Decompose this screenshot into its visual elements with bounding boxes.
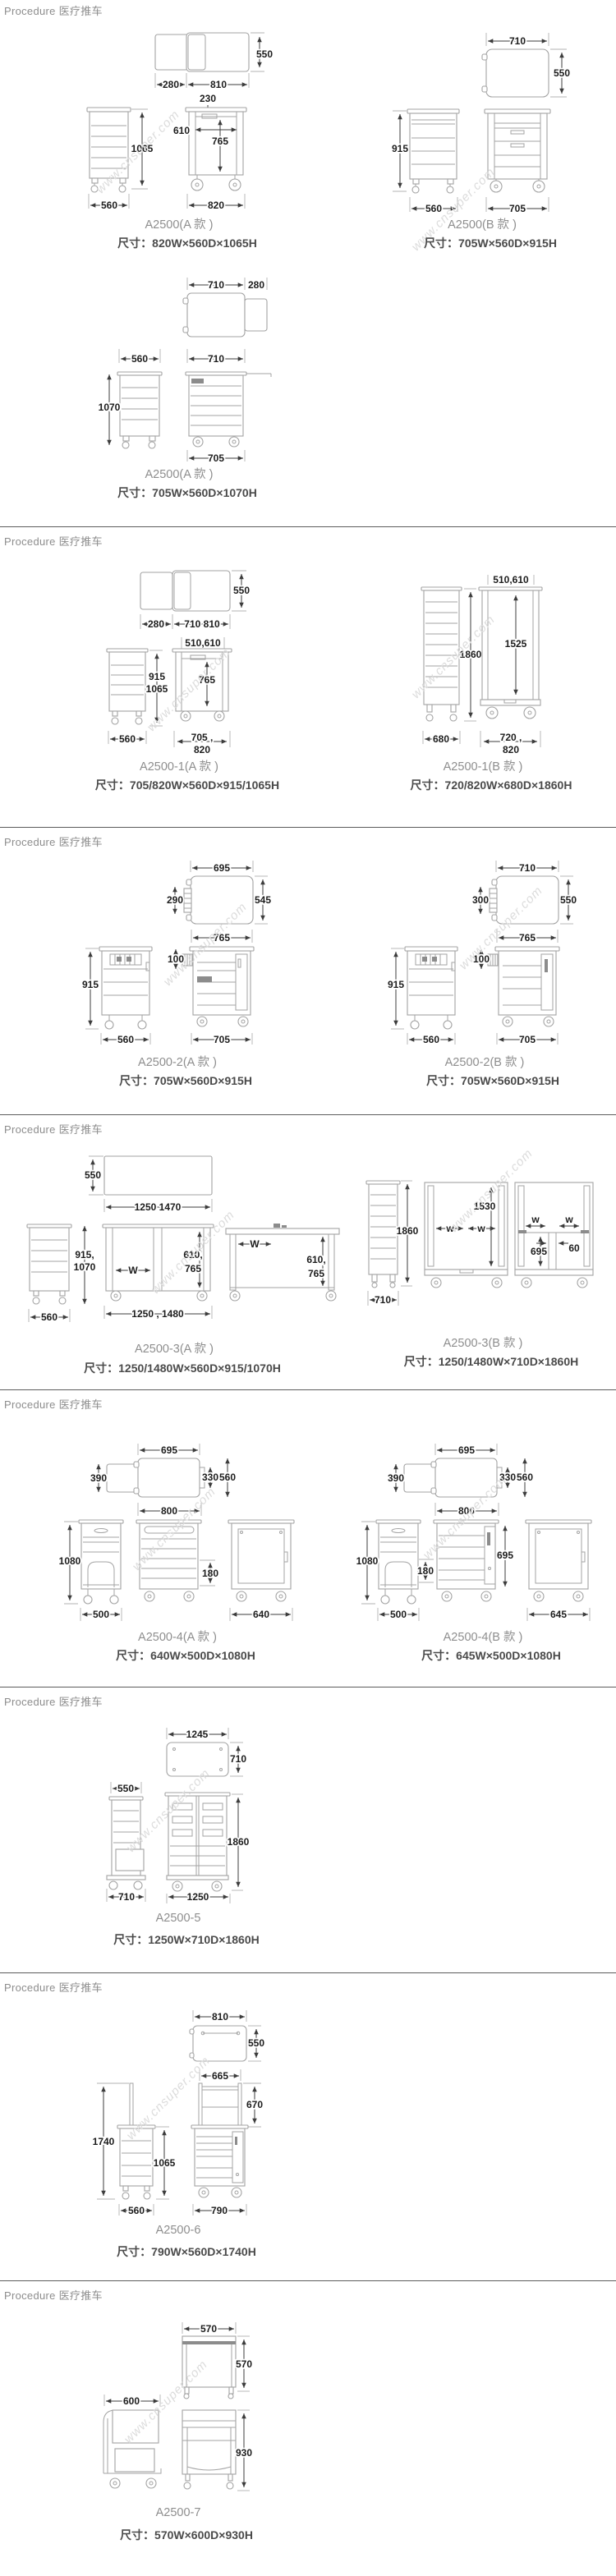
dim-label: 705 bbox=[208, 452, 224, 464]
dim-label: 60 bbox=[568, 1242, 580, 1254]
dim-label: 550 bbox=[233, 585, 250, 596]
dim-label: 1250 1470 bbox=[135, 1201, 182, 1213]
drawing-a2500-3a: 550 1250 1470 915, 1070 560 W 610, 765 1… bbox=[27, 1156, 339, 1323]
dim-label: w bbox=[476, 1223, 485, 1234]
drawing-a2500-2a: 695 290 545 765 915 100 bbox=[82, 861, 271, 1045]
dim-label: 710 bbox=[118, 1891, 135, 1903]
dim-label: 1070 bbox=[74, 1261, 96, 1273]
dim-label: 550 bbox=[117, 1783, 134, 1794]
dim-label: 560 bbox=[128, 2205, 145, 2216]
dim-label: 560 bbox=[41, 1311, 57, 1323]
dim-label: 300 bbox=[472, 894, 489, 906]
section-divider bbox=[0, 827, 616, 828]
model-size: 尺寸：720/820W×680D×1860H bbox=[343, 777, 616, 793]
dim-label: 1070 bbox=[99, 402, 121, 413]
section-header: Procedure 医疗推车 bbox=[4, 1693, 103, 1709]
dim-label: 790 bbox=[211, 2205, 228, 2216]
dim-label: W bbox=[128, 1265, 138, 1276]
dim-label: 600 bbox=[123, 2395, 140, 2407]
dim-label: 710 bbox=[208, 279, 224, 291]
model-name: A2500(A 款 ) bbox=[56, 215, 302, 232]
dim-label: 500 bbox=[390, 1609, 407, 1620]
dim-label: 1860 bbox=[228, 1836, 250, 1848]
dim-label: 695 bbox=[531, 1246, 547, 1257]
model-size: 尺寸：645W×500D×1080H bbox=[343, 1647, 616, 1664]
dim-label: 280 bbox=[148, 618, 164, 630]
model-size: 尺寸：705/820W×560D×915/1065H bbox=[39, 777, 335, 793]
model-size: 尺寸：640W×500D×1080H bbox=[38, 1647, 333, 1664]
dim-label: W bbox=[250, 1238, 260, 1250]
dim-label: 560 bbox=[117, 1034, 134, 1045]
dim-label: 570 bbox=[200, 2323, 217, 2335]
section-divider bbox=[0, 1389, 616, 1390]
dim-label: 390 bbox=[90, 1472, 107, 1484]
section-divider bbox=[0, 2280, 616, 2281]
dim-label: w bbox=[564, 1214, 573, 1225]
dim-label: 705 bbox=[519, 1034, 536, 1045]
dim-label: 915 bbox=[392, 143, 408, 154]
model-name: A2500-2(A 款 ) bbox=[54, 1053, 301, 1070]
dim-label: 230 bbox=[200, 93, 216, 104]
dim-label: 930 bbox=[236, 2447, 252, 2459]
model-name: A2500-7 bbox=[55, 2506, 301, 2519]
dim-label: 820 bbox=[503, 744, 519, 755]
dim-label: 560 bbox=[119, 733, 136, 745]
model-name: A2500(A 款 ) bbox=[56, 465, 302, 482]
dim-label: 330 bbox=[202, 1472, 218, 1483]
dim-label: 550 bbox=[560, 894, 577, 906]
section-header: Procedure 医疗推车 bbox=[4, 533, 103, 549]
dim-label: 560 bbox=[423, 1034, 439, 1045]
dim-label: 290 bbox=[167, 894, 183, 906]
model-name: A2500-1(A 款 ) bbox=[56, 757, 302, 774]
model-name: A2500-6 bbox=[55, 2224, 301, 2237]
drawing-a2500-6: 810 550 665 670 1740 1065 560 bbox=[93, 2010, 265, 2216]
model-name: A2500-3(B 款 ) bbox=[360, 1334, 606, 1351]
dim-label: 710 bbox=[509, 35, 526, 47]
section-divider bbox=[0, 1972, 616, 1973]
dim-label: 705 , bbox=[191, 732, 214, 743]
dim-label: 765 bbox=[308, 1268, 324, 1279]
model-name: A2500-4(B 款 ) bbox=[360, 1628, 606, 1645]
model-name: A2500-2(B 款 ) bbox=[361, 1053, 608, 1070]
dim-label: 720 , bbox=[500, 732, 522, 743]
dim-label: 1250 bbox=[187, 1891, 209, 1903]
dim-label: 645 bbox=[550, 1609, 567, 1620]
dim-label: 695 bbox=[161, 1444, 177, 1456]
dim-label: 820 bbox=[194, 744, 210, 755]
dim-label: 510,610 bbox=[185, 637, 221, 649]
dim-label: 670 bbox=[246, 2099, 263, 2110]
model-name: A2500(B 款 ) bbox=[359, 215, 605, 232]
dim-label: 765 bbox=[212, 135, 228, 147]
section-divider bbox=[0, 1687, 616, 1687]
model-size: 尺寸：1250/1480W×710D×1860H bbox=[343, 1353, 616, 1370]
section-header: Procedure 医疗推车 bbox=[4, 2, 103, 18]
dim-label: 640 bbox=[253, 1609, 269, 1620]
dim-label: 180 bbox=[417, 1565, 434, 1577]
dim-label: 550 bbox=[248, 2037, 264, 2049]
dim-label: 1065 bbox=[154, 2157, 176, 2169]
dim-label: 280 bbox=[248, 279, 264, 291]
dim-label: 710 bbox=[208, 353, 224, 365]
model-size: 尺寸：705W×560D×1070H bbox=[39, 484, 335, 501]
section-header: Procedure 医疗推车 bbox=[4, 2287, 103, 2303]
dim-label: 915 bbox=[149, 671, 165, 682]
dim-label: 550 bbox=[256, 48, 273, 60]
catalog-page: 550 280 810 230 1065 560 610 765 bbox=[0, 0, 616, 2576]
dim-label: 510,610 bbox=[493, 574, 529, 585]
dim-label: 1065 bbox=[146, 683, 168, 695]
model-size: 尺寸：705W×560D×915H bbox=[38, 1072, 333, 1089]
dim-label: 710 bbox=[519, 862, 536, 874]
dim-label: 1080 bbox=[59, 1555, 81, 1567]
section-header: Procedure 医疗推车 bbox=[4, 1396, 103, 1412]
dim-label: 710 bbox=[375, 1294, 391, 1306]
model-size: 尺寸：705W×560D×915H bbox=[345, 1072, 616, 1089]
dim-label: 800 bbox=[161, 1505, 177, 1517]
dim-label: 915, bbox=[75, 1249, 94, 1260]
section-header: Procedure 医疗推车 bbox=[4, 1979, 103, 1995]
dim-label: 560 bbox=[517, 1472, 533, 1483]
dim-label: 695 bbox=[214, 862, 230, 874]
drawing-a2500-1a: 550 280 710 810 510,610 915 1065 765 560 bbox=[107, 571, 250, 755]
line-art: 550 280 810 230 1065 560 610 765 bbox=[0, 0, 616, 2576]
dim-label: 1080 bbox=[356, 1555, 379, 1567]
dim-label: 695 bbox=[458, 1444, 475, 1456]
model-name: A2500-3(A 款 ) bbox=[51, 1339, 297, 1357]
dim-label: 560 bbox=[131, 353, 148, 365]
dim-label: 1525 bbox=[505, 638, 527, 650]
drawing-a2500-a2: 710 280 560 710 1070 705 bbox=[99, 278, 271, 464]
model-name: A2500-5 bbox=[55, 1912, 301, 1925]
dim-label: 680 bbox=[433, 733, 449, 745]
dim-label: 915 bbox=[388, 979, 404, 990]
dim-label: 810 bbox=[210, 79, 227, 90]
dim-label: 610 bbox=[173, 125, 190, 136]
model-name: A2500-1(B 款 ) bbox=[360, 757, 606, 774]
model-size: 尺寸：1250W×710D×1860H bbox=[39, 1931, 334, 1948]
dim-label: 570 bbox=[236, 2358, 252, 2370]
dim-label: 705 bbox=[214, 1034, 230, 1045]
model-size: 尺寸：790W×560D×1740H bbox=[39, 2243, 334, 2260]
dim-label: 550 bbox=[85, 1169, 101, 1181]
dim-label: 705 bbox=[509, 203, 526, 214]
dim-label: 710 bbox=[230, 1753, 246, 1765]
drawing-a2500-7: 570 570 600 930 bbox=[103, 2322, 252, 2491]
dim-label: 695 bbox=[497, 1550, 513, 1561]
dim-label: 280 bbox=[163, 79, 179, 90]
dim-label: 820 bbox=[208, 200, 224, 211]
model-name: A2500-4(A 款 ) bbox=[54, 1628, 301, 1645]
dim-label: 500 bbox=[93, 1609, 109, 1620]
dim-label: 710 810 bbox=[184, 618, 220, 630]
dim-label: 610, bbox=[306, 1254, 325, 1265]
dim-label: 765 bbox=[519, 932, 536, 944]
section-header: Procedure 医疗推车 bbox=[4, 1121, 103, 1136]
dim-label: 665 bbox=[212, 2070, 228, 2082]
section-header: Procedure 医疗推车 bbox=[4, 833, 103, 849]
drawing-a2500-4b: 695 390 330 560 800 1080 500 bbox=[356, 1444, 591, 1621]
dim-label: 545 bbox=[255, 894, 271, 906]
dim-label: 1245 bbox=[186, 1729, 209, 1740]
section-divider bbox=[0, 526, 616, 527]
dim-label: 810 bbox=[212, 2011, 228, 2023]
model-size: 尺寸：1250/1480W×560D×915/1070H bbox=[34, 1360, 330, 1376]
dim-label: 390 bbox=[388, 1472, 404, 1484]
dim-label: 1740 bbox=[93, 2136, 115, 2147]
dim-label: 550 bbox=[554, 67, 570, 79]
section-divider bbox=[0, 1114, 616, 1115]
model-size: 尺寸：570W×600D×930H bbox=[39, 2527, 334, 2543]
dim-label: 180 bbox=[202, 1568, 218, 1579]
dim-label: 560 bbox=[101, 200, 117, 211]
dim-label: w bbox=[531, 1214, 540, 1225]
model-size: 尺寸：705W×560D×915H bbox=[342, 235, 616, 251]
model-size: 尺寸：820W×560D×1065H bbox=[39, 235, 335, 251]
dim-label: 1250 , 1480 bbox=[131, 1308, 184, 1320]
drawing-a2500-5: 1245 710 550 710 1860 bbox=[107, 1728, 250, 1903]
dim-label: 915 bbox=[82, 979, 99, 990]
dim-label: 560 bbox=[219, 1472, 236, 1483]
dim-label: 1860 bbox=[397, 1225, 419, 1237]
